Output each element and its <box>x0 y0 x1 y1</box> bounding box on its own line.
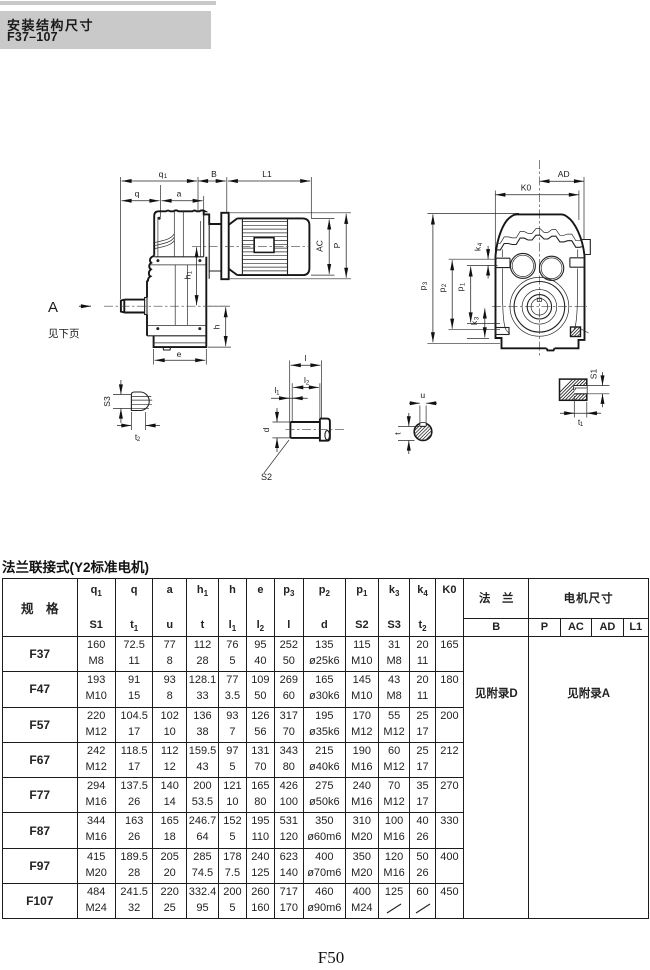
svg-text:4: 4 <box>478 242 484 246</box>
svg-text:e: e <box>177 349 182 359</box>
svg-text:u: u <box>420 390 425 400</box>
svg-text:S2: S2 <box>261 472 272 482</box>
svg-text:a: a <box>177 189 182 199</box>
svg-text:1: 1 <box>188 270 194 274</box>
svg-text:2: 2 <box>137 437 141 443</box>
svg-text:t: t <box>393 432 403 435</box>
svg-text:K0: K0 <box>521 183 532 193</box>
svg-text:1: 1 <box>164 174 168 180</box>
svg-text:B: B <box>211 169 217 179</box>
svg-text:见下页: 见下页 <box>48 328 80 340</box>
svg-text:1: 1 <box>580 422 584 428</box>
svg-text:AC: AC <box>315 240 325 252</box>
svg-text:2: 2 <box>442 283 448 287</box>
svg-text:3: 3 <box>423 281 429 285</box>
svg-text:l: l <box>305 353 307 363</box>
svg-text:S3: S3 <box>102 396 112 407</box>
svg-text:AD: AD <box>558 169 570 179</box>
svg-text:S1: S1 <box>589 369 599 380</box>
svg-text:h: h <box>212 324 222 329</box>
svg-text:L1: L1 <box>262 169 272 179</box>
svg-text:3: 3 <box>475 316 481 320</box>
svg-text:1: 1 <box>276 390 280 396</box>
svg-text:1: 1 <box>461 282 467 286</box>
svg-text:d: d <box>261 427 271 432</box>
svg-text:2: 2 <box>306 380 310 386</box>
svg-text:q: q <box>135 189 140 199</box>
svg-text:A: A <box>48 299 58 316</box>
svg-text:P: P <box>332 242 342 248</box>
